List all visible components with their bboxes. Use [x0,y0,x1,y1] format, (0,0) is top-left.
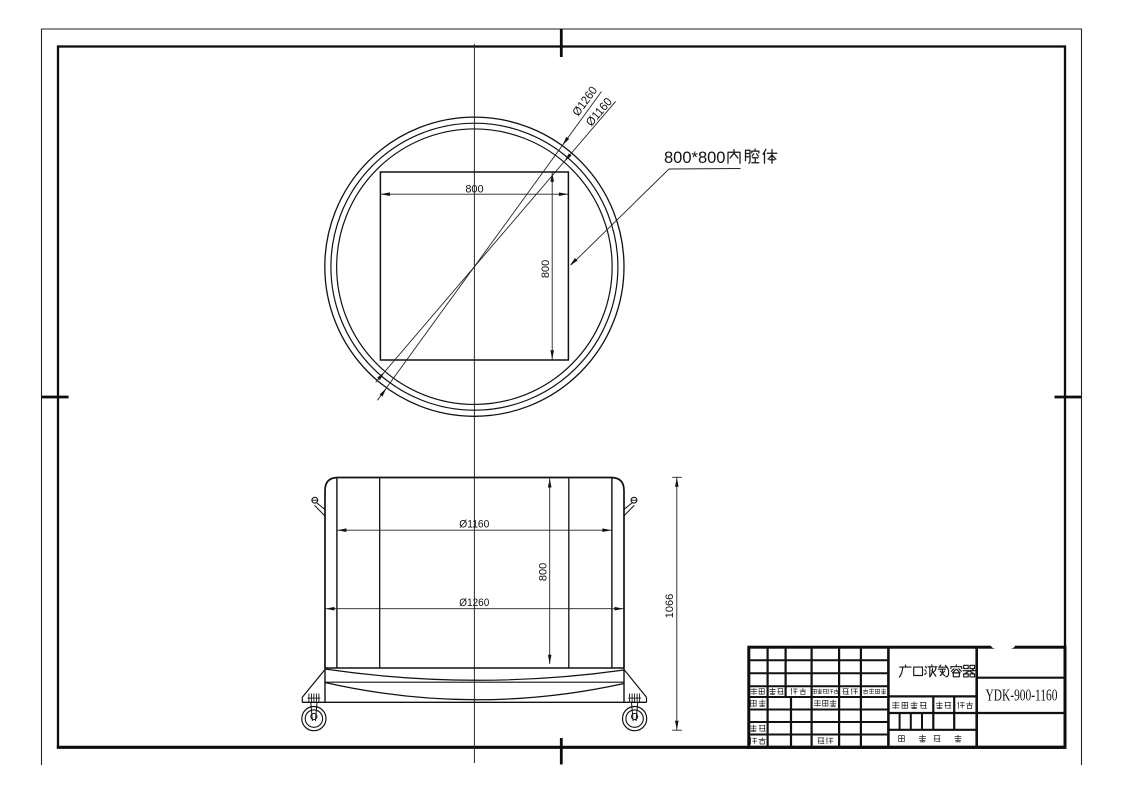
svg-text:800*800: 800*800 [664,149,725,167]
svg-text:800: 800 [465,183,483,195]
svg-text:Ø1160: Ø1160 [459,519,489,531]
svg-text:1066: 1066 [664,594,676,618]
svg-text:800: 800 [537,563,549,581]
svg-text:Ø1260: Ø1260 [459,597,489,609]
svg-text:800: 800 [540,260,552,278]
svg-text:YDK-900-1160: YDK-900-1160 [986,686,1058,705]
